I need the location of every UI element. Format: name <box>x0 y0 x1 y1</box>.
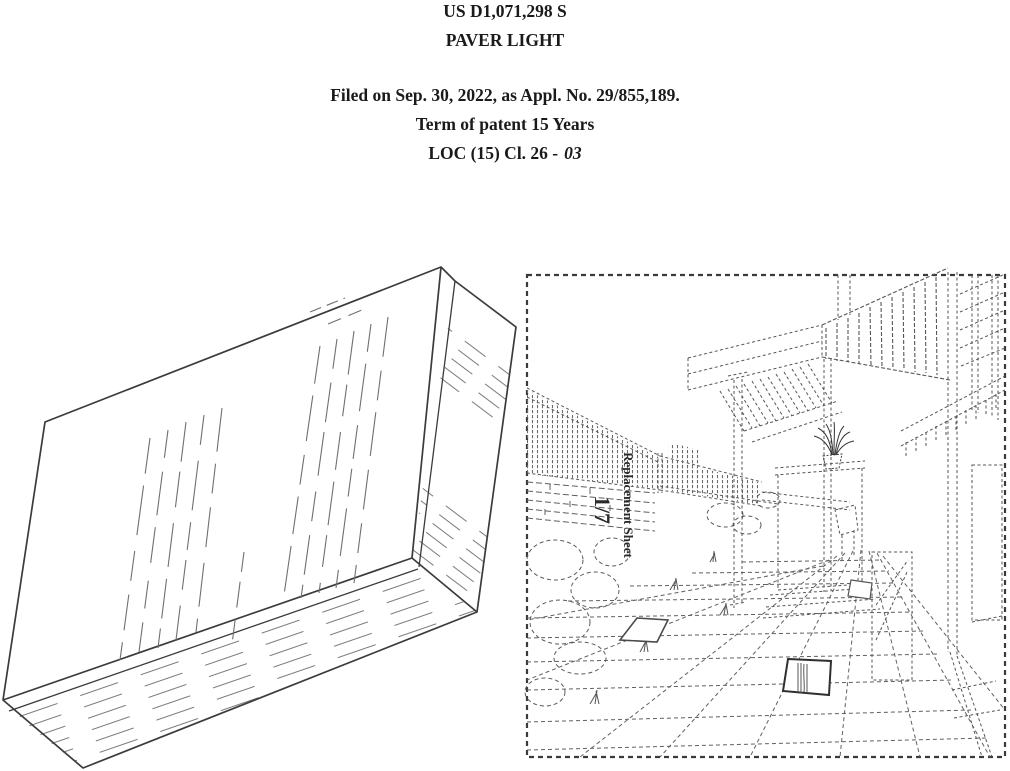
patent-header: US D1,071,298 S PAVER LIGHT Filed on Sep… <box>0 0 1010 168</box>
loc-line: LOC (15) Cl. 26 -03 <box>0 139 1010 168</box>
replacement-sheet-label: Replacement Sheet <box>621 452 636 558</box>
paver-light-instances <box>620 580 872 695</box>
awning <box>822 268 950 380</box>
porch <box>688 325 880 618</box>
loc-class: 03 <box>564 143 582 163</box>
patent-title: PAVER LIGHT <box>0 26 1010 55</box>
fence <box>527 388 850 510</box>
box-hatching <box>9 320 511 768</box>
sheet-number-label: 1/7 <box>590 496 615 524</box>
environment-figure: 1/7 Replacement Sheet <box>520 260 1010 771</box>
paver-light-drawing <box>0 260 520 771</box>
building <box>838 272 1005 757</box>
term-line: Term of patent 15 Years <box>0 110 1010 139</box>
environment-drawing: 1/7 Replacement Sheet <box>520 260 1010 771</box>
paver-floor <box>527 550 1005 757</box>
filed-line: Filed on Sep. 30, 2022, as Appl. No. 29/… <box>0 81 1010 110</box>
patent-number: US D1,071,298 S <box>0 0 1010 26</box>
paver-light-figure <box>0 260 520 771</box>
loc-prefix: LOC (15) Cl. 26 - <box>428 143 558 163</box>
